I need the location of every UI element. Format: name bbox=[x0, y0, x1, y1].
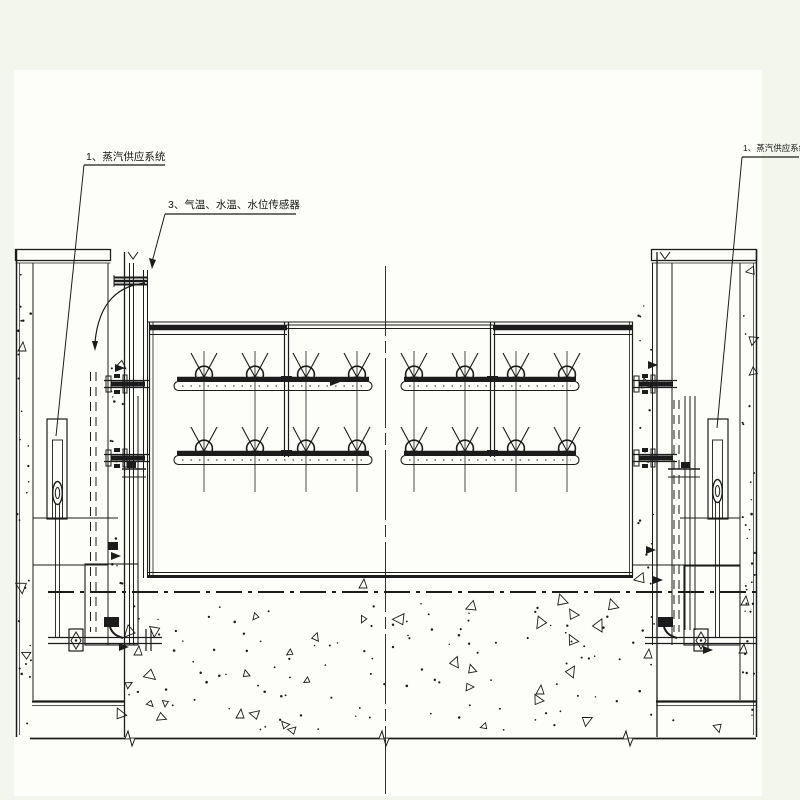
stipple-dot bbox=[246, 650, 248, 652]
stipple-dot bbox=[594, 655, 596, 657]
stipple-dot bbox=[638, 690, 641, 693]
stipple-dot bbox=[746, 640, 748, 642]
stipple-dot bbox=[260, 729, 262, 731]
stipple-dot bbox=[20, 320, 22, 322]
stipple-dot bbox=[128, 694, 130, 696]
nozzle-base bbox=[252, 451, 259, 456]
stipple-dot bbox=[208, 616, 210, 618]
bolt-head bbox=[642, 390, 648, 394]
nozzle-base bbox=[354, 451, 361, 456]
stipple-dot bbox=[329, 644, 331, 646]
stipple-dot bbox=[218, 675, 221, 678]
stipple-dot bbox=[122, 403, 124, 405]
stipple-dot bbox=[571, 641, 573, 643]
stipple-dot bbox=[288, 658, 290, 660]
stipple-dot bbox=[213, 649, 215, 651]
stipple-dot bbox=[748, 405, 750, 407]
stipple-dot bbox=[314, 645, 316, 647]
stipple-dot bbox=[27, 465, 29, 467]
stipple-dot bbox=[745, 585, 747, 587]
stipple-dot bbox=[742, 423, 744, 425]
stipple-dot bbox=[745, 333, 747, 335]
stipple-dot bbox=[373, 605, 375, 607]
stipple-dot bbox=[650, 714, 652, 716]
stipple-dot bbox=[534, 611, 536, 613]
stipple-dot bbox=[317, 728, 319, 730]
nozzle-base bbox=[354, 377, 361, 382]
stipple-dot bbox=[550, 625, 551, 626]
stipple-dot bbox=[749, 529, 750, 530]
label-text: 3、气温、水温、水位传感器 bbox=[168, 198, 300, 211]
stipple-dot bbox=[29, 312, 32, 315]
nozzle-base bbox=[201, 451, 208, 456]
bolt-head bbox=[114, 464, 120, 468]
stipple-dot bbox=[274, 666, 276, 668]
stipple-dot bbox=[233, 621, 236, 624]
stipple-dot bbox=[751, 562, 753, 564]
stipple-dot bbox=[29, 645, 31, 647]
stipple-dot bbox=[27, 445, 29, 447]
stipple-dot bbox=[228, 708, 229, 709]
stipple-dot bbox=[363, 650, 365, 652]
stipple-dot bbox=[499, 708, 501, 710]
stipple-dot bbox=[28, 481, 29, 482]
stipple-dot bbox=[372, 658, 374, 660]
stipple-dot bbox=[751, 499, 752, 500]
stipple-dot bbox=[173, 649, 176, 652]
stipple-dot bbox=[407, 635, 409, 637]
stipple-dot bbox=[392, 624, 394, 626]
stipple-dot bbox=[121, 582, 123, 584]
stipple-dot bbox=[430, 713, 432, 715]
stipple-dot bbox=[490, 679, 492, 681]
stipple-dot bbox=[746, 672, 748, 674]
stipple-dot bbox=[744, 610, 745, 611]
stipple-dot bbox=[742, 516, 744, 518]
stipple-dot bbox=[260, 641, 262, 643]
stipple-dot bbox=[754, 552, 756, 554]
stipple-dot bbox=[527, 637, 529, 639]
stipple-dot bbox=[193, 699, 195, 701]
stipple-dot bbox=[225, 674, 227, 676]
stipple-dot bbox=[653, 623, 655, 625]
stipple-dot bbox=[325, 664, 327, 666]
stipple-dot bbox=[750, 513, 753, 516]
stipple-dot bbox=[458, 716, 461, 719]
stipple-dot bbox=[26, 492, 28, 494]
nozzle-base bbox=[411, 377, 418, 382]
stipple-dot bbox=[602, 626, 605, 629]
stipple-dot bbox=[355, 715, 356, 716]
stipple-dot bbox=[172, 704, 174, 706]
stipple-dot bbox=[165, 688, 167, 690]
stipple-dot bbox=[648, 409, 650, 411]
stipple-dot bbox=[745, 524, 747, 526]
stipple-dot bbox=[406, 620, 408, 622]
stipple-dot bbox=[754, 574, 756, 576]
stipple-dot bbox=[20, 274, 22, 276]
stipple-dot bbox=[477, 652, 479, 654]
stipple-dot bbox=[28, 580, 30, 582]
stipple-dot bbox=[616, 700, 618, 702]
stipple-dot bbox=[111, 367, 113, 369]
nozzle-base bbox=[303, 377, 310, 382]
stipple-dot bbox=[647, 566, 649, 568]
stipple-dot bbox=[503, 729, 505, 731]
nozzle-base bbox=[303, 451, 310, 456]
stipple-dot bbox=[205, 681, 208, 684]
stipple-dot bbox=[749, 611, 751, 613]
bolt-head bbox=[114, 448, 120, 452]
bolt-head bbox=[114, 374, 120, 378]
nozzle-base bbox=[564, 451, 571, 456]
stipple-dot bbox=[639, 427, 641, 429]
stipple-dot bbox=[581, 657, 583, 659]
stipple-dot bbox=[566, 625, 568, 627]
stipple-dot bbox=[370, 625, 372, 627]
stipple-dot bbox=[25, 663, 27, 665]
stipple-dot bbox=[21, 410, 23, 412]
stipple-dot bbox=[565, 632, 567, 634]
engineering-drawing: 1、蒸汽供应系统 3、气温、水温、水位传感器 1、蒸汽供应系统 bbox=[0, 0, 800, 800]
stipple-dot bbox=[751, 714, 752, 715]
stipple-dot bbox=[30, 659, 32, 661]
stipple-dot bbox=[300, 714, 302, 716]
stipple-dot bbox=[650, 583, 652, 585]
bolt-head bbox=[114, 390, 120, 394]
stipple-dot bbox=[468, 643, 470, 645]
stipple-dot bbox=[17, 354, 19, 356]
stipple-dot bbox=[369, 717, 371, 719]
nozzle-base bbox=[201, 377, 208, 382]
stipple-dot bbox=[157, 619, 158, 620]
stipple-dot bbox=[115, 537, 118, 540]
stipple-dot bbox=[460, 628, 462, 630]
stipple-dot bbox=[588, 657, 590, 659]
bolt-head bbox=[642, 374, 648, 378]
stipple-dot bbox=[22, 319, 24, 321]
stipple-dot bbox=[280, 695, 283, 698]
nozzle-base bbox=[252, 377, 259, 382]
stipple-dot bbox=[535, 719, 537, 721]
stipple-dot bbox=[113, 400, 116, 403]
stipple-dot bbox=[606, 615, 608, 617]
stipple-dot bbox=[449, 644, 450, 645]
bolt-head bbox=[642, 448, 648, 452]
stipple-dot bbox=[26, 723, 28, 725]
stipple-dot bbox=[566, 662, 568, 664]
stipple-dot bbox=[639, 316, 641, 318]
nozzle-base bbox=[411, 451, 418, 456]
stipple-dot bbox=[746, 589, 748, 591]
stipple-dot bbox=[743, 315, 745, 317]
stipple-dot bbox=[137, 691, 139, 693]
stipple-dot bbox=[431, 628, 434, 631]
stipple-dot bbox=[112, 396, 113, 397]
stipple-dot bbox=[495, 642, 497, 644]
stipple-dot bbox=[289, 676, 291, 678]
stipple-dot bbox=[650, 664, 652, 666]
nozzle-base bbox=[462, 377, 469, 382]
stipple-dot bbox=[746, 602, 748, 604]
stipple-dot bbox=[639, 519, 641, 521]
stipple-dot bbox=[192, 661, 194, 663]
stipple-dot bbox=[458, 634, 461, 637]
stipple-dot bbox=[468, 613, 469, 614]
stipple-dot bbox=[553, 724, 555, 726]
stipple-dot bbox=[650, 349, 652, 351]
stipple-dot bbox=[420, 603, 422, 605]
stipple-dot bbox=[330, 697, 332, 699]
stipple-dot bbox=[643, 305, 645, 307]
stipple-dot bbox=[595, 696, 597, 698]
stipple-dot bbox=[263, 691, 266, 694]
stipple-dot bbox=[392, 646, 394, 648]
drawing-page: { "labels": { "steam_left": { "text": "1… bbox=[0, 0, 800, 800]
stipple-dot bbox=[268, 610, 270, 612]
pipe-elbow-fitting bbox=[658, 617, 673, 627]
stipple-dot bbox=[752, 603, 754, 605]
nozzle-base bbox=[513, 377, 520, 382]
stipple-dot bbox=[577, 695, 579, 697]
bolt-head bbox=[642, 464, 648, 468]
stipple-dot bbox=[750, 481, 752, 483]
stipple-dot bbox=[619, 658, 621, 660]
stipple-dot bbox=[29, 676, 31, 678]
stipple-dot bbox=[279, 719, 281, 721]
stipple-dot bbox=[467, 620, 469, 622]
stipple-dot bbox=[112, 440, 114, 442]
stipple-dot bbox=[219, 606, 221, 608]
stipple-dot bbox=[110, 440, 112, 442]
stipple-dot bbox=[370, 673, 372, 675]
stipple-dot bbox=[337, 642, 339, 644]
stipple-dot bbox=[406, 685, 409, 688]
paper-sheet bbox=[14, 70, 762, 796]
stipple-dot bbox=[182, 640, 183, 641]
stipple-dot bbox=[285, 694, 287, 696]
stipple-dot bbox=[751, 581, 753, 583]
stipple-dot bbox=[434, 679, 436, 681]
stipple-dot bbox=[428, 613, 430, 615]
label-text: 1、蒸汽供应系统 bbox=[743, 143, 800, 153]
stipple-dot bbox=[20, 673, 23, 676]
stipple-dot bbox=[747, 538, 748, 539]
stipple-dot bbox=[116, 565, 117, 566]
stipple-dot bbox=[742, 671, 744, 673]
stipple-dot bbox=[257, 685, 259, 687]
stipple-dot bbox=[359, 707, 361, 709]
nozzle-base bbox=[462, 451, 469, 456]
stipple-dot bbox=[199, 672, 202, 675]
stipple-dot bbox=[641, 629, 643, 631]
stipple-dot bbox=[421, 668, 423, 670]
nozzle-base bbox=[564, 377, 571, 382]
stipple-dot bbox=[583, 645, 585, 647]
stipple-dot bbox=[556, 683, 558, 685]
stipple-dot bbox=[175, 630, 177, 632]
stipple-dot bbox=[545, 712, 547, 714]
stipple-dot bbox=[438, 681, 440, 683]
stipple-dot bbox=[632, 641, 634, 643]
stipple-dot bbox=[158, 633, 160, 635]
stipple-dot bbox=[639, 340, 641, 342]
stipple-dot bbox=[264, 726, 266, 728]
stipple-dot bbox=[469, 704, 471, 706]
stipple-dot bbox=[536, 607, 538, 609]
stipple-dot bbox=[672, 719, 674, 721]
stipple-dot bbox=[243, 632, 245, 634]
stipple-dot bbox=[560, 710, 562, 712]
stipple-dot bbox=[637, 522, 639, 524]
pipe-elbow-fitting bbox=[104, 617, 119, 627]
label-text: 1、蒸汽供应系统 bbox=[86, 150, 166, 163]
stipple-dot bbox=[408, 637, 410, 639]
nozzle-base bbox=[513, 451, 520, 456]
